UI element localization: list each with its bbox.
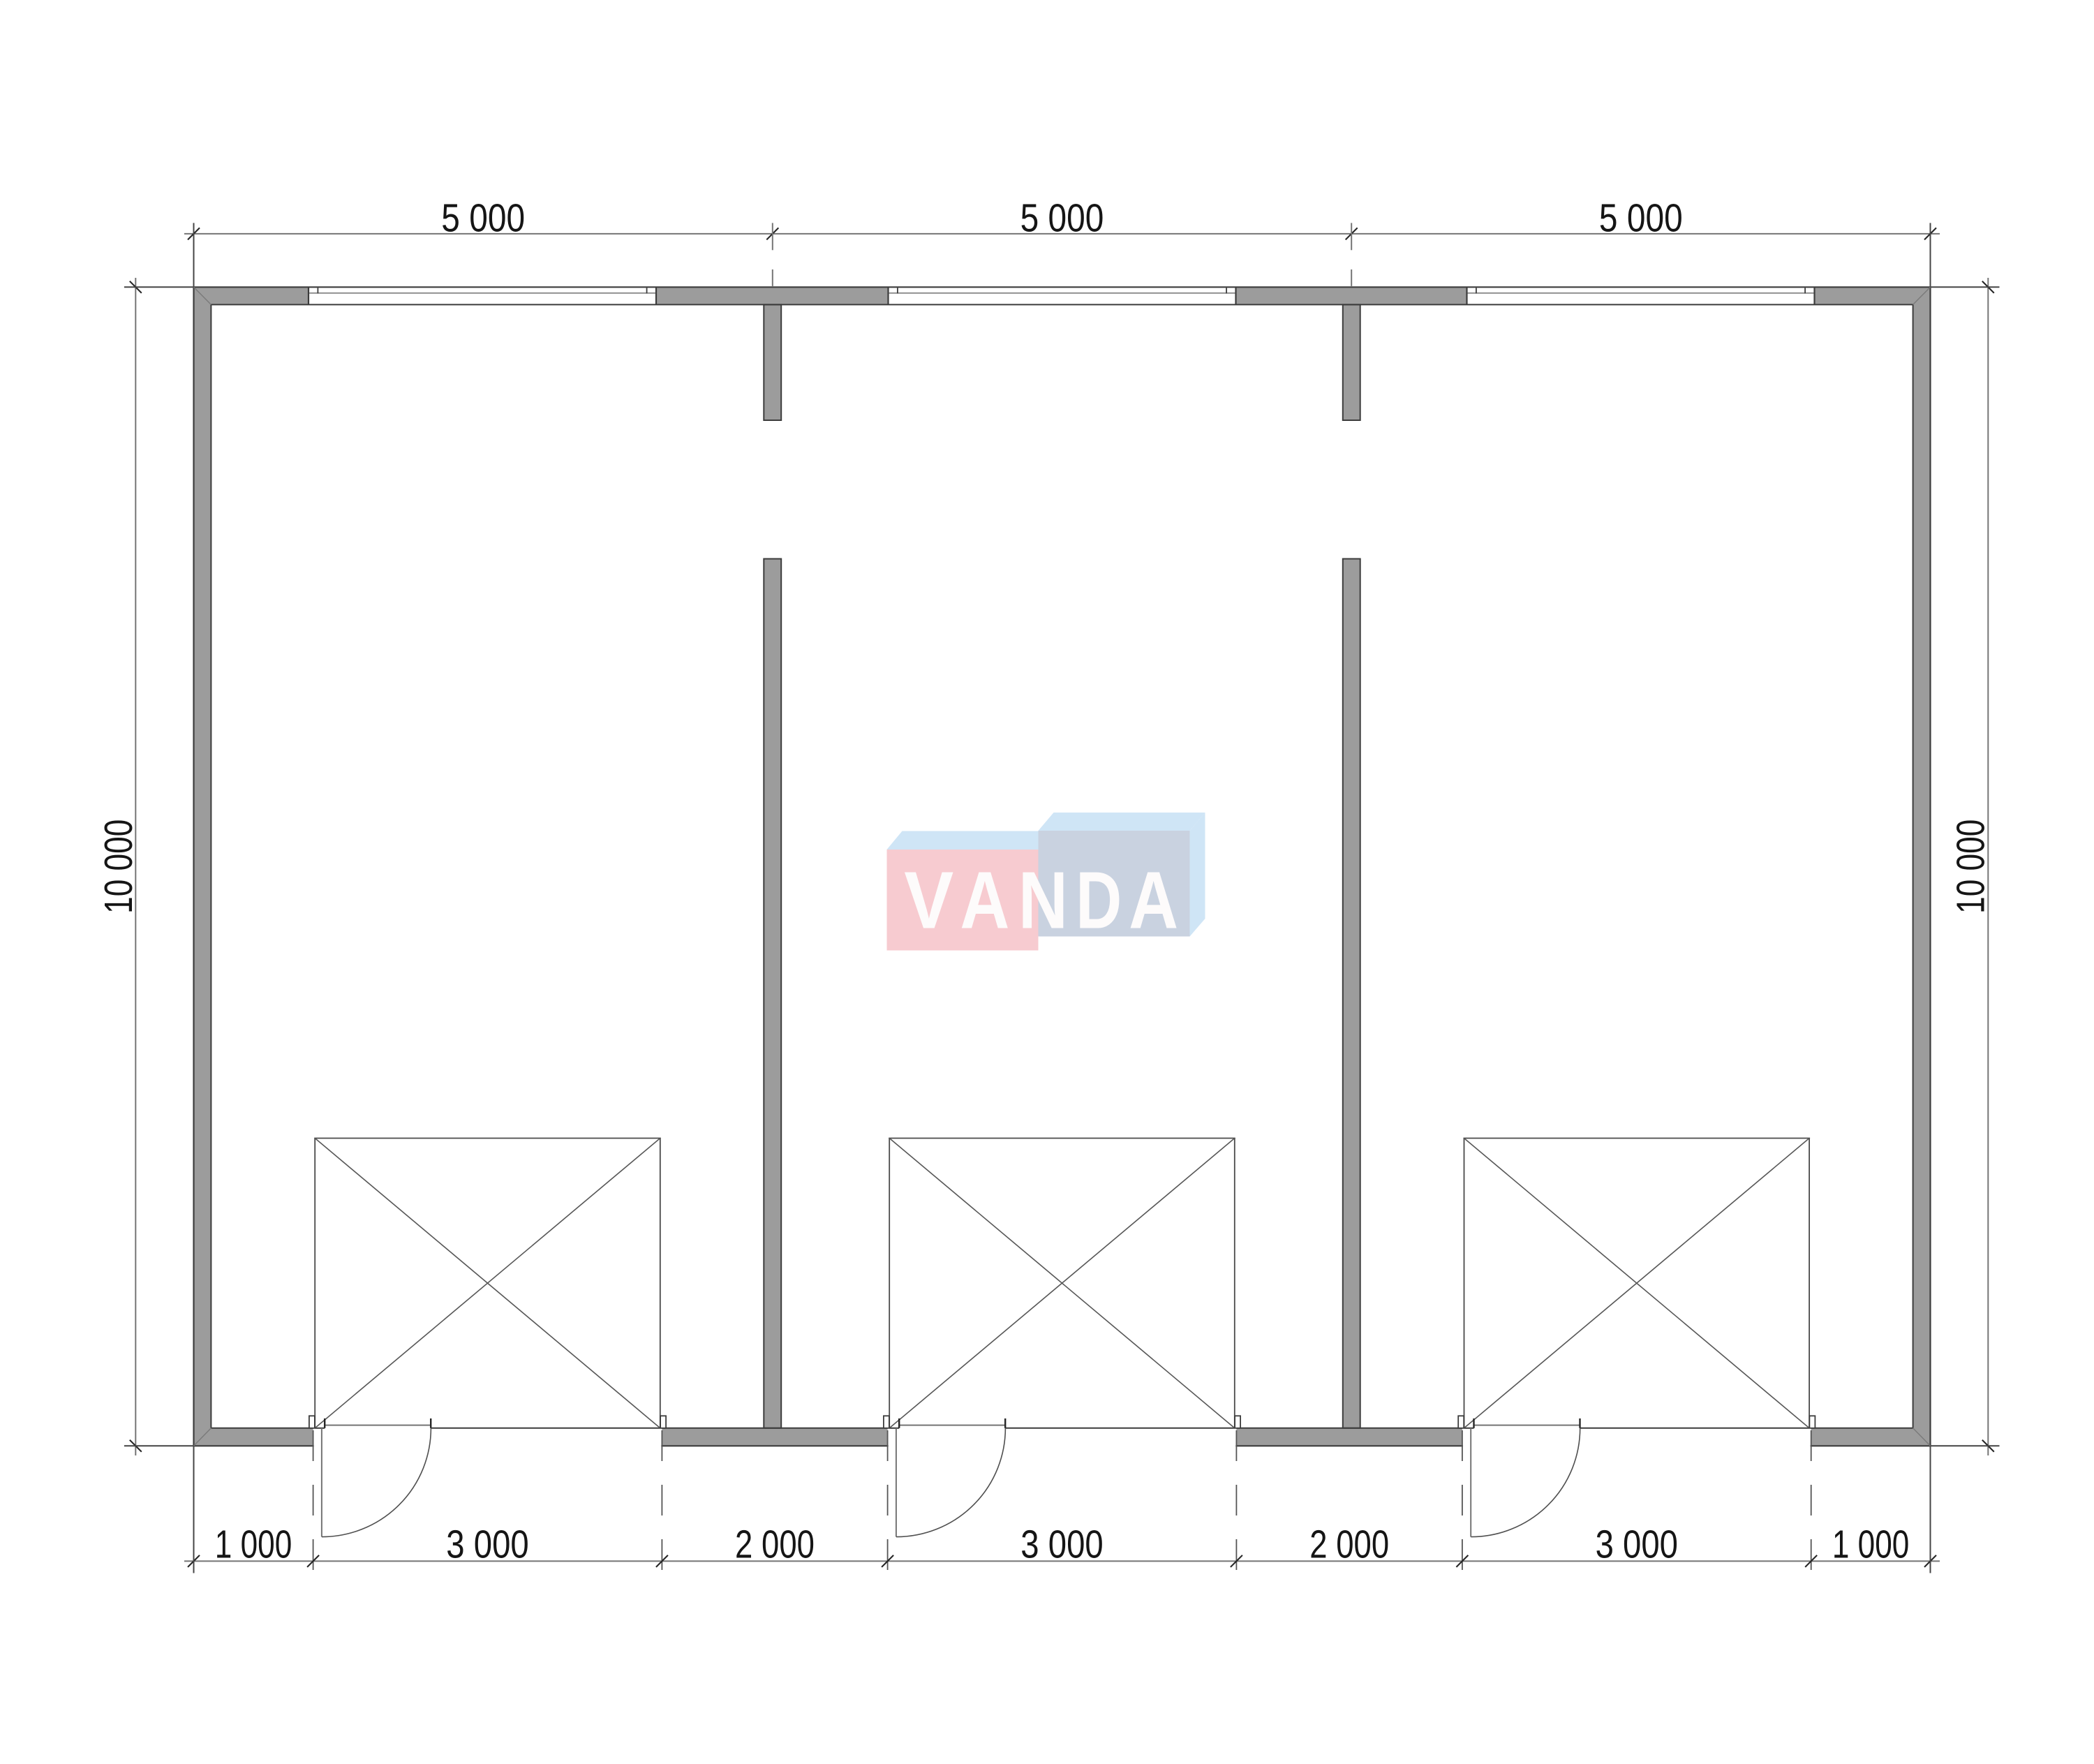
- svg-text:A: A: [1129, 855, 1178, 946]
- svg-text:3 000: 3 000: [1596, 1522, 1678, 1567]
- svg-text:D: D: [1076, 855, 1122, 946]
- svg-text:10 000: 10 000: [1949, 820, 1993, 914]
- svg-text:N: N: [1018, 855, 1068, 946]
- svg-text:2 000: 2 000: [1309, 1522, 1389, 1567]
- svg-text:A: A: [960, 855, 1009, 946]
- svg-text:3 000: 3 000: [446, 1522, 528, 1567]
- svg-text:5 000: 5 000: [1599, 196, 1683, 241]
- svg-text:V: V: [904, 855, 953, 946]
- svg-text:1 000: 1 000: [1832, 1522, 1910, 1567]
- svg-text:2 000: 2 000: [735, 1522, 815, 1567]
- svg-text:3 000: 3 000: [1020, 1522, 1103, 1567]
- svg-text:1 000: 1 000: [215, 1522, 292, 1567]
- svg-text:5 000: 5 000: [441, 196, 525, 241]
- svg-text:5 000: 5 000: [1020, 196, 1104, 241]
- svg-text:10 000: 10 000: [96, 820, 141, 914]
